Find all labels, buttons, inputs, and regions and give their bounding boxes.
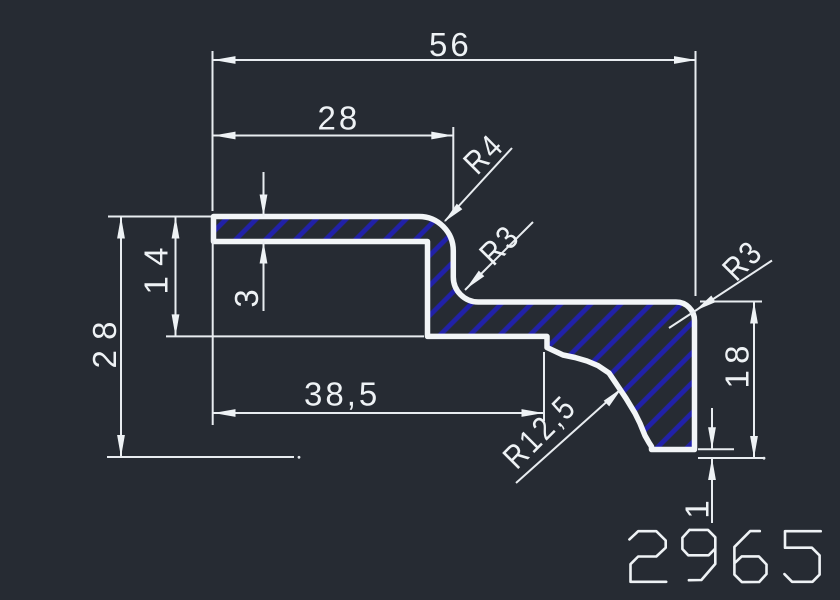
svg-text:56: 56	[429, 26, 472, 63]
svg-text:28: 28	[318, 100, 361, 137]
svg-text:38,5: 38,5	[304, 376, 380, 413]
svg-text:1: 1	[679, 497, 716, 518]
svg-text:3: 3	[228, 286, 265, 307]
